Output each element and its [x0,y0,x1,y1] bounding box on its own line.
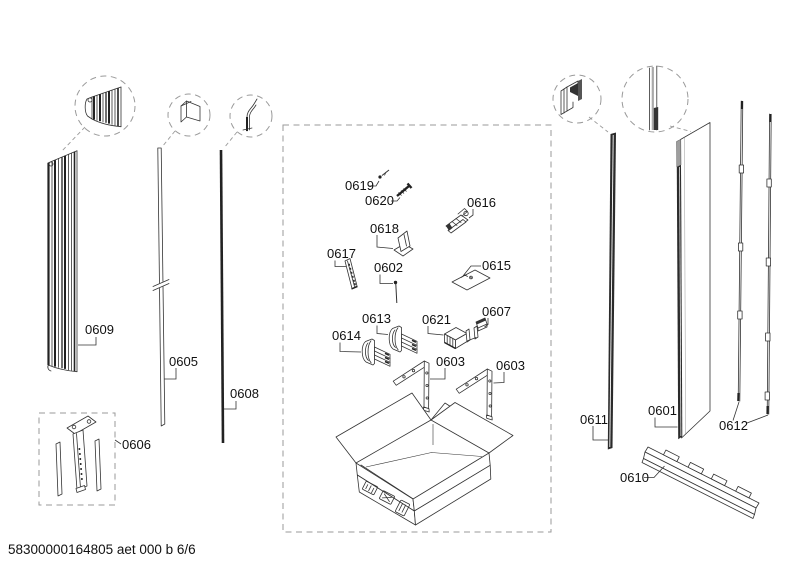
part-label-0619: 0619 [345,178,374,193]
part-label-0621: 0621 [422,312,451,327]
part-label-0612: 0612 [719,418,748,433]
parts-diagram-page: 0609 0605 0608 [0,0,800,566]
part-label-0617: 0617 [327,246,356,261]
part-0611-rail [608,133,616,450]
part-label-0606: 0606 [122,437,151,452]
part-0612-rails [738,101,772,414]
part-0621-wedge-block [445,328,468,349]
callout-0609: 0609 [78,322,114,345]
callout-0619: 0619 [345,178,379,193]
part-label-0607: 0607 [482,304,511,319]
detail-circle-0608 [224,95,272,148]
callout-0614: 0614 [332,328,361,352]
callout-0611: 0611 [580,412,608,440]
part-0610-notched-trim [642,447,759,519]
part-0608-trim-rail [221,150,223,443]
part-0602-pin [394,281,397,303]
part-label-0610: 0610 [620,470,649,485]
part-label-0620: 0620 [365,193,394,208]
part-0601-door-panel [677,123,711,440]
callout-0613: 0613 [362,311,391,335]
part-0616-hinge-bracket [446,209,468,234]
exploded-parts-drawing: 0609 0605 0608 [0,0,800,566]
part-label-0602: 0602 [374,260,403,275]
part-0619-screw [378,170,389,179]
part-label-0608: 0608 [230,386,259,401]
part-label-0615: 0615 [482,258,511,273]
part-0617-perforated-strip [345,259,358,290]
part-0614-clip-bracket [362,339,390,366]
part-0613-clip-bracket [389,326,417,353]
detail-circle-0605 [162,94,210,147]
callout-0605: 0605 [164,354,198,379]
part-label-0611: 0611 [580,412,608,427]
part-label-0603-left: 0603 [436,354,465,369]
part-0605-rail [153,148,169,426]
part-label-0601: 0601 [648,403,677,418]
part-0615-plate [452,270,490,290]
part-0609-profile [48,151,77,372]
callout-0602: 0602 [374,260,403,284]
detail-circle-0609 [62,76,135,151]
callout-0603-left: 0603 [430,354,465,379]
part-label-0616: 0616 [467,195,496,210]
callout-0601: 0601 [648,403,678,427]
part-label-0609: 0609 [85,322,114,337]
part-label-0613: 0613 [362,311,391,326]
part-label-0605: 0605 [169,354,198,369]
part-0607-clamp-bracket [466,318,487,342]
part-label-0618: 0618 [370,221,399,236]
callout-0608: 0608 [224,386,259,409]
document-code: 58300000164805 aet 000 b 6/6 [8,542,196,557]
callout-0616: 0616 [467,195,496,218]
carton-box [336,393,513,525]
detail-circle-0601 [622,66,691,132]
callout-0603-right: 0603 [494,358,525,383]
callout-0612: 0612 [719,402,768,433]
callout-0620: 0620 [365,193,400,208]
detail-circle-0611 [553,75,608,132]
accessory-kit-boundary [283,125,551,532]
part-0620-screw [397,184,412,197]
callout-0606: 0606 [115,437,151,452]
callout-0618: 0618 [370,221,399,249]
part-label-0614: 0614 [332,328,361,343]
part-0606-assembly [39,413,115,505]
callout-0621: 0621 [422,312,451,335]
part-label-0603-right: 0603 [496,358,525,373]
